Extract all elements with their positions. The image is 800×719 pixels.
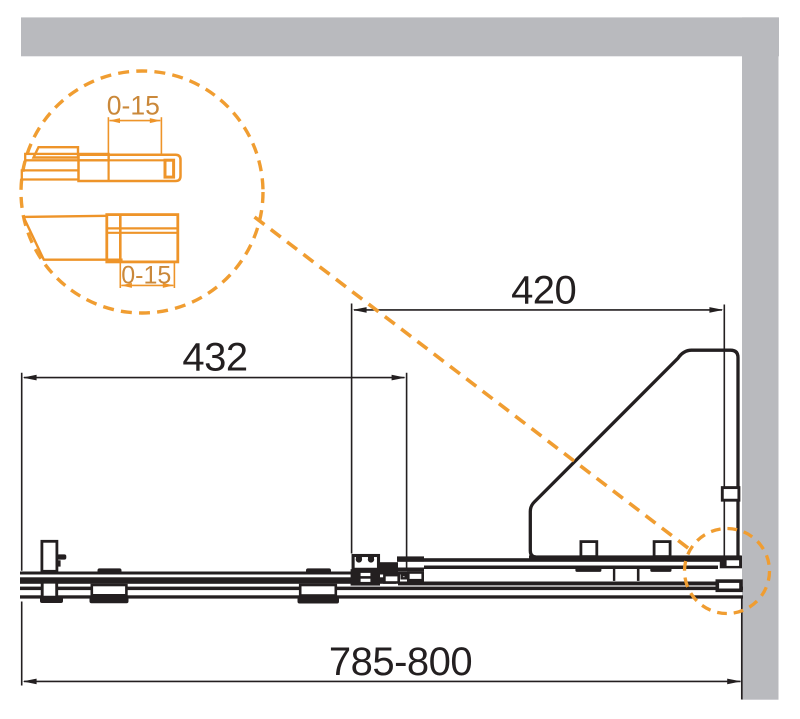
svg-text:420: 420 (511, 269, 576, 313)
svg-text:0-15: 0-15 (107, 90, 160, 120)
svg-text:0-15: 0-15 (121, 261, 171, 289)
svg-text:785-800: 785-800 (329, 640, 472, 684)
svg-text:432: 432 (182, 336, 247, 380)
